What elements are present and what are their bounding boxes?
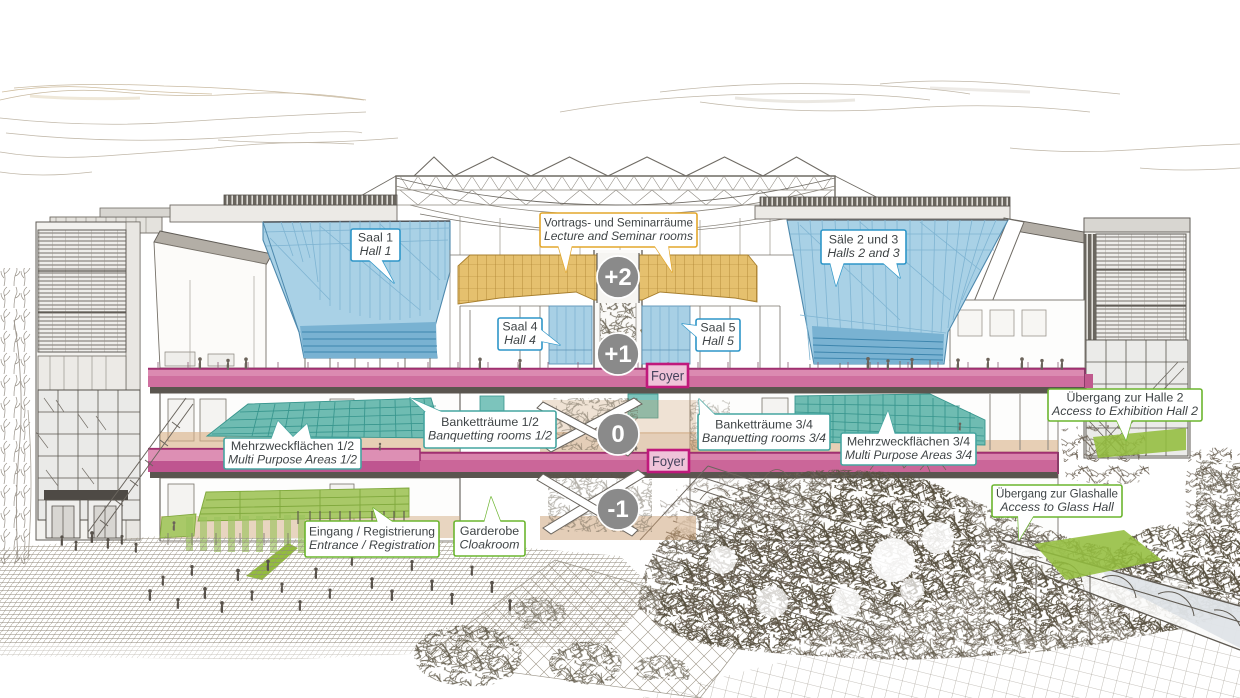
svg-text:Vortrags- und Seminarräume: Vortrags- und Seminarräume: [544, 216, 693, 230]
svg-text:Banketträume 3/4: Banketträume 3/4: [715, 418, 813, 432]
svg-text:0: 0: [611, 421, 624, 448]
svg-text:Multi Purpose Areas 1/2: Multi Purpose Areas 1/2: [228, 453, 357, 467]
svg-text:Saal 4: Saal 4: [502, 320, 537, 334]
svg-text:Banquetting rooms 3/4: Banquetting rooms 3/4: [702, 431, 826, 445]
svg-text:Foyer: Foyer: [651, 369, 684, 384]
svg-text:Hall 1: Hall 1: [360, 244, 392, 258]
svg-text:Access to Glass Hall: Access to Glass Hall: [999, 500, 1115, 514]
svg-text:+2: +2: [604, 264, 631, 291]
svg-text:Halls 2 and 3: Halls 2 and 3: [827, 246, 899, 260]
svg-text:Eingang / Registrierung: Eingang / Registrierung: [309, 525, 435, 539]
svg-text:Mehrzweckflächen 3/4: Mehrzweckflächen 3/4: [847, 435, 970, 449]
svg-text:Übergang zur Halle 2: Übergang zur Halle 2: [1066, 391, 1183, 405]
svg-text:Banquetting rooms 1/2: Banquetting rooms 1/2: [428, 429, 552, 443]
svg-text:-1: -1: [607, 496, 628, 523]
svg-text:Lecture and Seminar rooms: Lecture and Seminar rooms: [544, 229, 693, 243]
svg-text:Saal 5: Saal 5: [700, 321, 735, 335]
svg-text:+1: +1: [604, 341, 631, 368]
svg-text:Foyer: Foyer: [652, 454, 685, 469]
svg-text:Säle 2 und 3: Säle 2 und 3: [829, 233, 899, 247]
svg-text:Hall 5: Hall 5: [702, 334, 734, 348]
svg-text:Übergang zur Glashalle: Übergang zur Glashalle: [996, 487, 1118, 501]
svg-text:Mehrzweckflächen 1/2: Mehrzweckflächen 1/2: [231, 439, 354, 453]
svg-text:Cloakroom: Cloakroom: [460, 538, 520, 552]
svg-text:Multi Purpose Areas 3/4: Multi Purpose Areas 3/4: [845, 448, 972, 462]
svg-text:Banketträume 1/2: Banketträume 1/2: [441, 415, 539, 429]
svg-text:Hall 4: Hall 4: [504, 333, 536, 347]
svg-text:Saal 1: Saal 1: [358, 231, 393, 245]
svg-text:Access to Exhibition Hall 2: Access to Exhibition Hall 2: [1051, 404, 1198, 418]
svg-text:Garderobe: Garderobe: [460, 524, 519, 538]
svg-text:Entrance / Registration: Entrance / Registration: [309, 538, 435, 552]
